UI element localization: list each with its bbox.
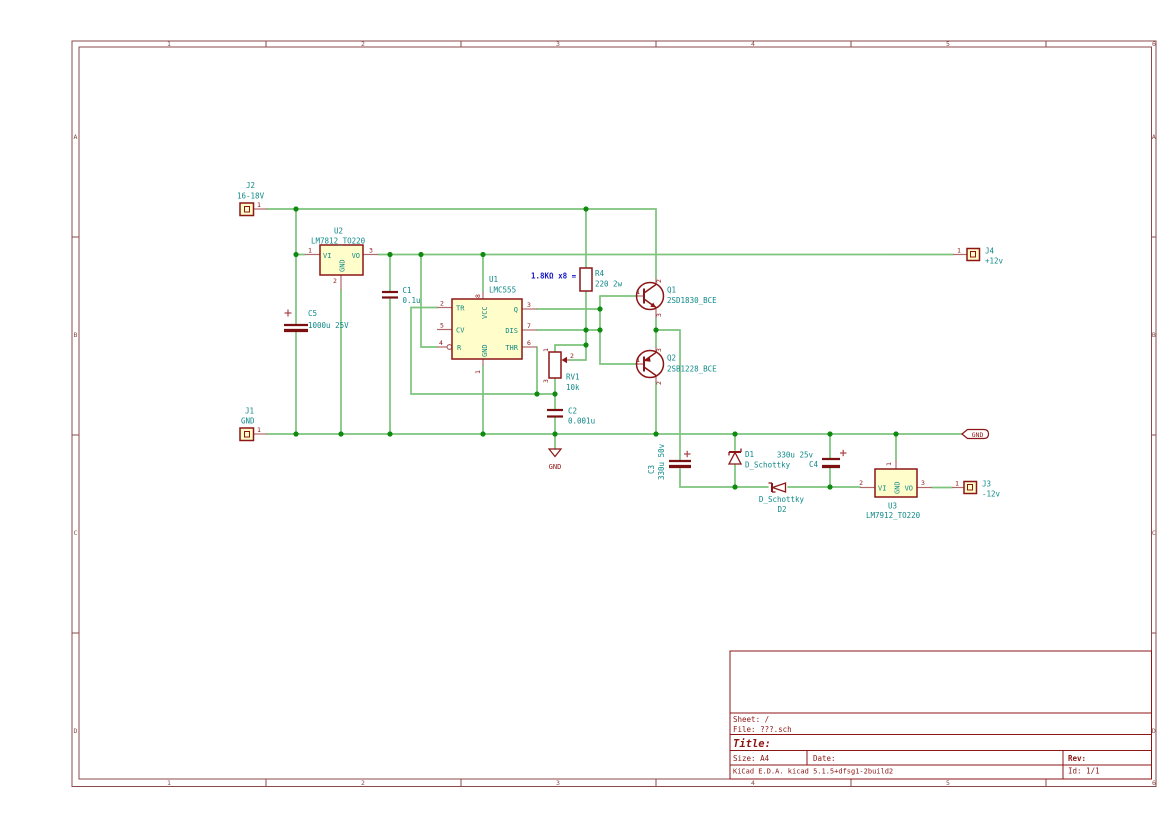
ref-D2: D2: [777, 505, 786, 514]
pin-number: 2: [859, 479, 863, 487]
value-C2: 0.001u: [568, 417, 595, 426]
pin-number: 2: [333, 277, 337, 285]
ref-J3: J3: [982, 480, 991, 489]
pin-number: 3: [655, 313, 663, 317]
company-field: KiCad E.D.A. kicad 5.1.5+dfsg1-2build2: [733, 768, 893, 776]
ref-U2: U2: [334, 227, 343, 236]
col-label: 5: [946, 779, 950, 787]
col-label: 2: [361, 779, 365, 787]
value-RV1: 10k: [566, 383, 580, 392]
value-C3: 330u 50v: [657, 443, 666, 480]
note-text[interactable]: 1.8KΩ x8 =: [531, 272, 577, 281]
junction-dots: [293, 206, 898, 489]
col-label: 3: [556, 40, 560, 48]
ref-U1: U1: [489, 275, 498, 284]
sheet-field: Sheet: /: [733, 715, 769, 724]
ref-D1: D1: [745, 450, 754, 459]
component-U2[interactable]: U2 LM7812_TO220 VI VO GND 1 3 2: [305, 227, 378, 291]
component-J4[interactable]: J4 +12v 1: [953, 247, 1004, 266]
ref-J4: J4: [985, 247, 995, 256]
value-D2: D_Schottky: [759, 495, 805, 504]
value-J2: 16-18V: [237, 192, 265, 201]
pin-number: 1: [308, 247, 312, 255]
ref-J2: J2: [246, 181, 255, 190]
pin-name-gnd: GND: [339, 259, 347, 272]
wire[interactable]: [656, 318, 680, 461]
value-U1: LMC555: [489, 286, 516, 295]
value-J3: -12v: [982, 490, 1001, 499]
component-RV1[interactable]: RV1 10k 1 2 3: [542, 348, 580, 392]
ref-Q1: Q1: [667, 286, 676, 295]
pin-number: 1: [957, 247, 961, 255]
pin-number: 5: [440, 322, 444, 330]
ref-C1: C1: [403, 286, 412, 295]
gnd-power-symbol[interactable]: GND: [549, 449, 562, 471]
ref-U3: U3: [888, 502, 897, 511]
pin-name-vi: VI: [323, 252, 331, 260]
value-Q1: 2SD1830_BCE: [667, 296, 717, 305]
ref-C3: C3: [647, 465, 656, 474]
component-C1[interactable]: C1 0.1u: [382, 286, 421, 305]
id-field: Id: 1/1: [1068, 767, 1100, 776]
pin-number: 2: [655, 279, 663, 283]
value-D1: D_Schottky: [745, 461, 791, 470]
pin-number: 1: [257, 201, 261, 209]
frame-ticks: [72, 41, 1156, 787]
title-field: Title:: [733, 738, 771, 750]
col-label: 3: [556, 779, 560, 787]
schematic-canvas[interactable]: 1 2 3 4 5 6 1 2 3 4 5 6 A B C D A B C D: [0, 0, 1170, 827]
pin-name-q: Q: [514, 306, 518, 314]
wire[interactable]: [421, 255, 437, 348]
col-label: 5: [946, 40, 950, 48]
component-J1[interactable]: J1 GND 1: [240, 407, 267, 441]
date-field: Date:: [813, 754, 836, 763]
pin-number: 1: [474, 370, 482, 374]
row-label: A: [1152, 133, 1156, 141]
value-C1: 0.1u: [403, 296, 421, 305]
value-U3: LM7912_TO220: [866, 511, 921, 520]
row-label: C: [1152, 529, 1156, 537]
pin-name-gnd: GND: [481, 344, 489, 357]
col-label: 6: [1152, 779, 1156, 787]
pin-number: 2: [440, 300, 444, 308]
col-label: 4: [751, 779, 755, 787]
row-label: D: [1152, 727, 1156, 735]
component-Q1[interactable]: Q1 2SD1830_BCE 2 1 3: [636, 278, 717, 318]
title-block: Sheet: / File: ???.sch Title: Size: A4 D…: [730, 651, 1152, 779]
gnd-flag[interactable]: GND: [962, 430, 989, 439]
gnd-flag-label: GND: [972, 431, 984, 439]
size-field: Size: A4: [733, 754, 770, 763]
gnd-symbol-label: GND: [549, 463, 562, 471]
pin-name-vo: VO: [905, 485, 913, 493]
col-label: 4: [751, 40, 755, 48]
pin-name-vcc: VCC: [481, 306, 489, 319]
component-U1[interactable]: U1 LMC555 TR CV R Q DIS THR VCC GND 2 5 …: [437, 275, 537, 374]
col-label: 1: [167, 40, 171, 48]
pin-name-cv: CV: [456, 327, 465, 335]
pin-number: 3: [655, 348, 663, 352]
component-C3[interactable]: C3 330u 50v: [647, 443, 691, 480]
pin-number: 3: [542, 379, 550, 383]
ref-C2: C2: [568, 407, 577, 416]
pin-name-vo: VO: [352, 252, 360, 260]
wire[interactable]: [680, 469, 768, 487]
pin-number: 3: [527, 301, 531, 309]
pin-number: 1: [955, 480, 959, 488]
pin-number: 7: [527, 322, 531, 330]
col-label: 6: [1152, 40, 1156, 48]
ref-C4: C4: [809, 460, 819, 469]
file-field: File: ???.sch: [733, 725, 792, 734]
component-R4[interactable]: R4 220 2w: [580, 268, 623, 291]
ref-Q2: Q2: [667, 354, 676, 363]
ref-J1: J1: [245, 407, 254, 416]
frame-column-labels: 1 2 3 4 5 6 1 2 3 4 5 6: [167, 40, 1156, 787]
rev-field: Rev:: [1068, 754, 1086, 763]
value-J4: +12v: [985, 257, 1004, 266]
component-Q2[interactable]: Q2 2SB1228_BCE 3 1 2: [636, 347, 717, 385]
pin-name-tr: TR: [456, 305, 465, 313]
value-Q2: 2SB1228_BCE: [667, 365, 717, 374]
pin-number: 4: [439, 339, 443, 347]
row-label: C: [74, 529, 78, 537]
row-label: A: [74, 133, 78, 141]
pin-number: 1: [885, 462, 893, 466]
value-R4: 220 2w: [595, 280, 623, 289]
pin-number: 1: [542, 348, 550, 352]
value-C4: 330u 25v: [777, 451, 814, 460]
pin-number: 6: [527, 339, 531, 347]
pin-name-dis: DIS: [505, 327, 518, 335]
col-label: 1: [167, 779, 171, 787]
ref-R4: R4: [595, 269, 605, 278]
row-label: D: [74, 727, 78, 735]
pin-number: 8: [474, 294, 482, 298]
pin-number: 3: [921, 479, 925, 487]
value-U2: LM7812_TO220: [311, 237, 366, 246]
pin-name-thr: THR: [505, 344, 518, 352]
pin-number: 3: [369, 247, 373, 255]
pin-name-gnd: GND: [894, 481, 902, 494]
col-label: 2: [361, 40, 365, 48]
sheet-frame: 1 2 3 4 5 6 1 2 3 4 5 6 A B C D A B C D: [72, 40, 1156, 787]
pin-number: 2: [570, 352, 574, 360]
pin-number: 1: [636, 288, 640, 296]
ref-C5: C5: [308, 309, 317, 318]
component-C5[interactable]: C5 1000u 25V: [284, 309, 349, 331]
component-J3[interactable]: J3 -12v 1: [952, 480, 1001, 499]
pin-name-vi: VI: [878, 485, 886, 493]
value-J1: GND: [241, 417, 255, 426]
ref-RV1: RV1: [566, 373, 580, 382]
component-U3[interactable]: U3 LM7912_TO220 VI VO GND 2 3 1: [859, 460, 932, 520]
pin-number: 1: [636, 356, 640, 364]
row-label: B: [74, 331, 78, 339]
pin-number: 2: [655, 381, 663, 385]
component-J2[interactable]: J2 16-18V 1: [237, 181, 267, 216]
row-label: B: [1152, 331, 1156, 339]
value-C5: 1000u 25V: [308, 321, 349, 330]
pin-number: 1: [257, 426, 261, 434]
